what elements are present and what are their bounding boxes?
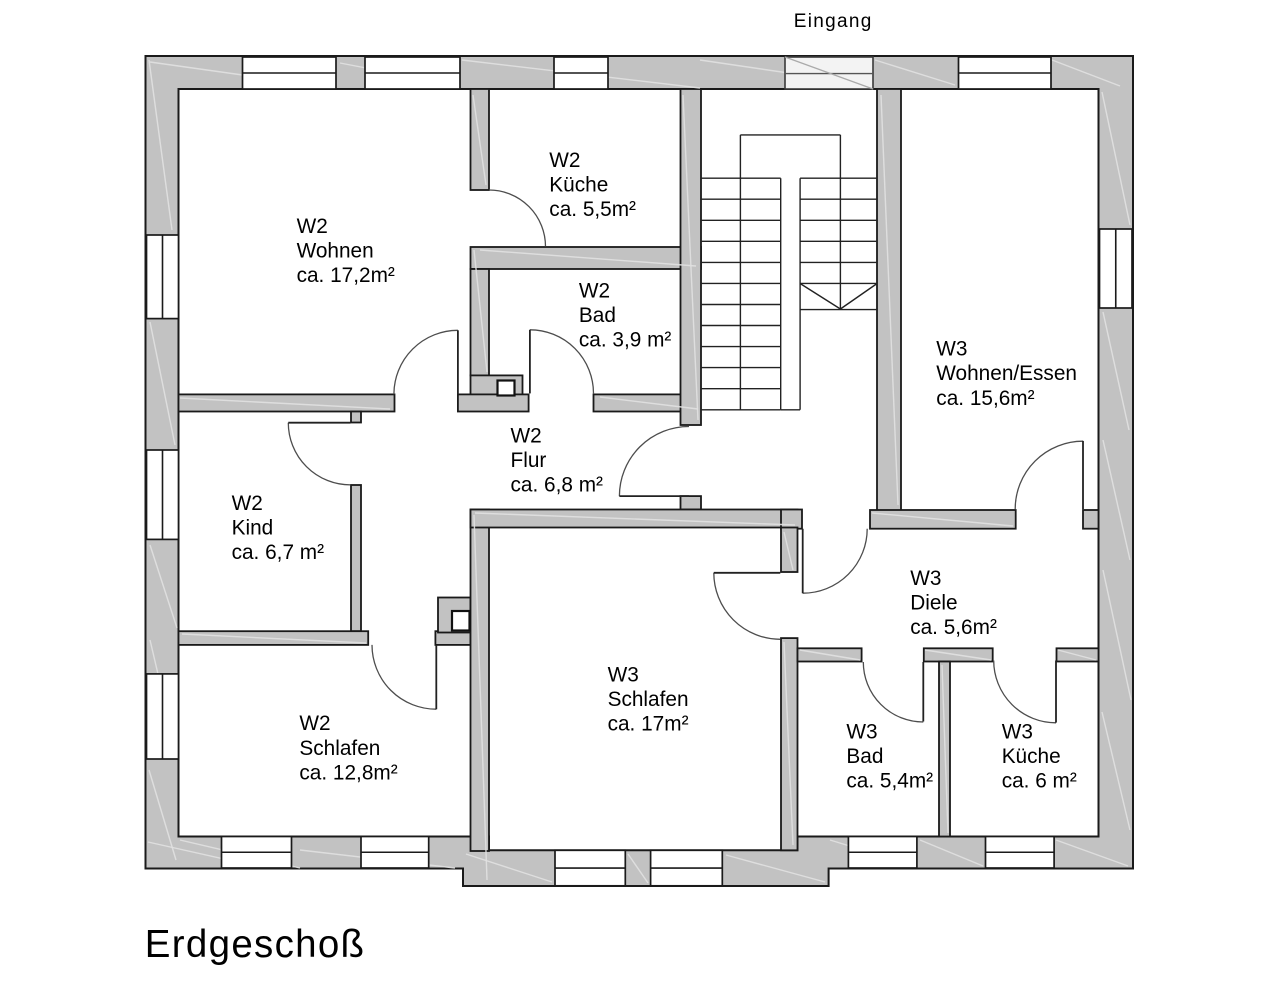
svg-text:Erdgeschoß: Erdgeschoß bbox=[145, 923, 366, 966]
svg-text:Eingang: Eingang bbox=[794, 11, 873, 32]
